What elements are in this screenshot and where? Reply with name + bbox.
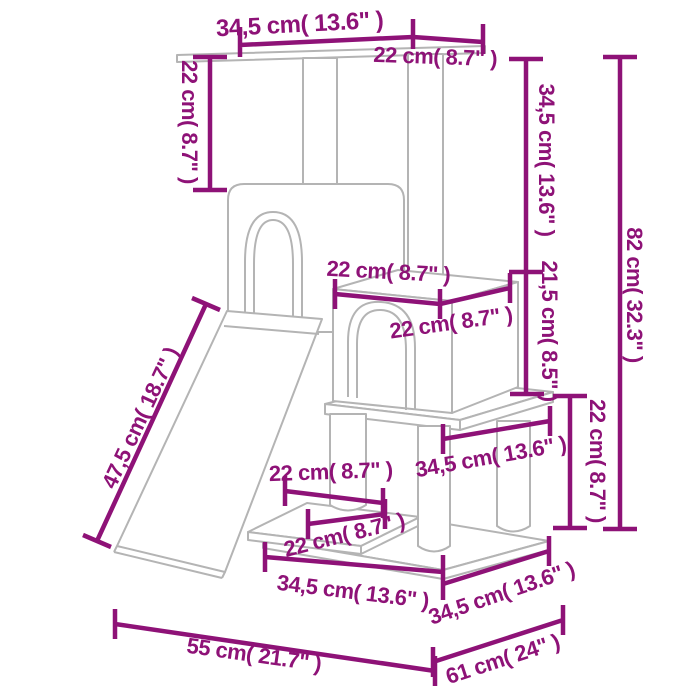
dim-step-depth-label: 22 cm( 8.7" )	[268, 457, 393, 486]
dim-right-lower-height-label: 22 cm( 8.7" )	[585, 399, 610, 523]
cat-tree-dimension-diagram: 34,5 cm( 13.6" ) 22 cm( 8.7" ) 22 cm( 8.…	[0, 0, 700, 700]
lower-condo-front	[333, 289, 452, 413]
dim-right-upper-height-label: 34,5 cm( 13.6" )	[534, 84, 559, 237]
dim-top-depth-label: 22 cm( 8.7" )	[373, 42, 498, 71]
dim-total-height-label: 82 cm( 32.3" )	[622, 227, 647, 363]
scratching-post-upper-right	[408, 54, 443, 286]
scratching-post-upper-left	[303, 58, 337, 188]
dim-right-mid-height-label: 21,5 cm( 8.5" )	[537, 260, 562, 401]
screenshot-canvas: 34,5 cm( 13.6" ) 22 cm( 8.7" ) 22 cm( 8.…	[0, 0, 700, 700]
dim-upper-post-height-label: 22 cm( 8.7" )	[177, 60, 202, 184]
